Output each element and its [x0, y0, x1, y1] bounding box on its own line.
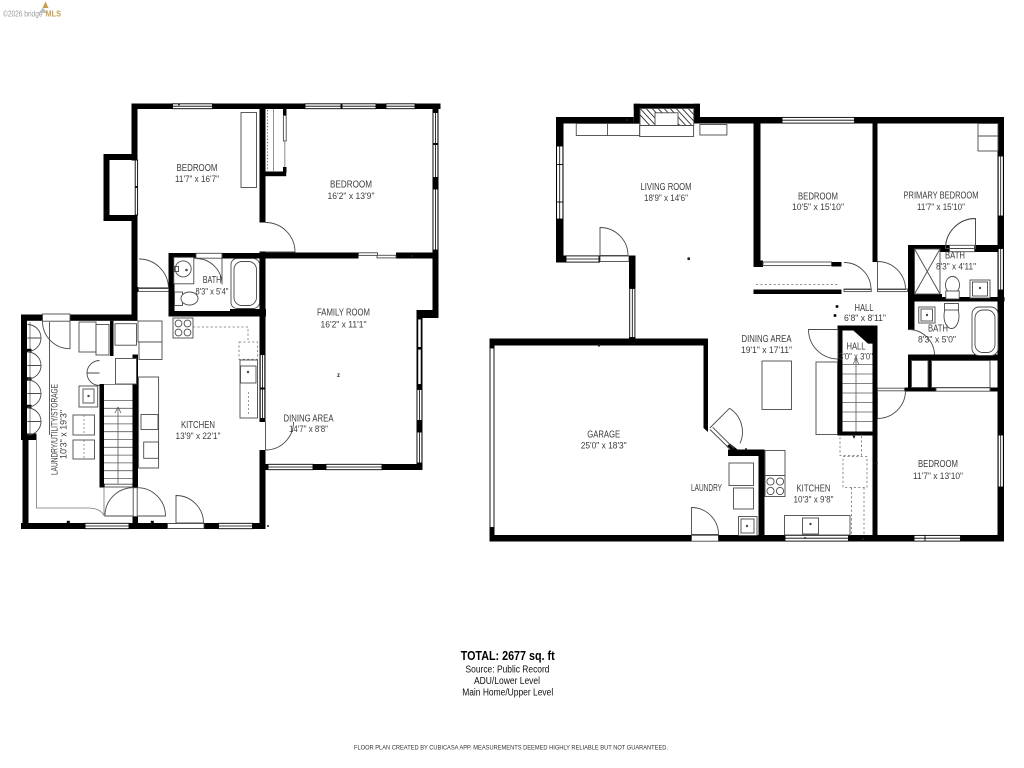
svg-text:11'7" x 13'10": 11'7" x 13'10" [913, 471, 963, 482]
svg-text:14'7" x 8'8": 14'7" x 8'8" [289, 424, 328, 435]
svg-text:Main Home/Upper Level: Main Home/Upper Level [462, 688, 553, 699]
svg-text:FLOOR PLAN CREATED BY CUBICASA: FLOOR PLAN CREATED BY CUBICASA APP. MEAS… [354, 745, 668, 752]
svg-text:BEDROOM: BEDROOM [918, 459, 958, 470]
svg-text:BATH: BATH [928, 324, 948, 335]
svg-text:BATH: BATH [203, 275, 222, 286]
svg-text:11'7" x 16'7": 11'7" x 16'7" [175, 174, 219, 185]
svg-text:MLS: MLS [46, 9, 62, 19]
svg-text:BEDROOM: BEDROOM [798, 192, 838, 203]
svg-text:3'0" x 3'0": 3'0" x 3'0" [839, 352, 873, 363]
svg-text:©2026 bridge: ©2026 bridge [3, 9, 43, 19]
svg-text:8'3" x 4'11": 8'3" x 4'11" [936, 262, 976, 273]
svg-text:DINING AREA: DINING AREA [742, 334, 792, 345]
svg-text:Source: Public Record: Source: Public Record [466, 665, 550, 676]
svg-text:BEDROOM: BEDROOM [330, 180, 372, 191]
svg-text:KITCHEN: KITCHEN [181, 420, 215, 431]
svg-text:10'3" x 9'8": 10'3" x 9'8" [794, 495, 834, 506]
svg-text:PRIMARY BEDROOM: PRIMARY BEDROOM [904, 191, 979, 202]
svg-text:16'2" x 11'1": 16'2" x 11'1" [321, 320, 367, 331]
svg-text:FAMILY ROOM: FAMILY ROOM [317, 308, 370, 319]
svg-text:25'0" x 18'3": 25'0" x 18'3" [581, 441, 627, 452]
svg-text:ADU/Lower Level: ADU/Lower Level [474, 676, 540, 687]
svg-text:z: z [337, 373, 340, 379]
svg-text:11'7" x 15'10": 11'7" x 15'10" [917, 202, 965, 213]
svg-text:10'3" x 19'3": 10'3" x 19'3" [59, 410, 70, 459]
svg-text:BATH: BATH [945, 251, 965, 262]
svg-text:6'8" x 8'11": 6'8" x 8'11" [844, 313, 886, 324]
svg-text:BEDROOM: BEDROOM [177, 163, 218, 174]
svg-text:8'3" x 5'0": 8'3" x 5'0" [918, 335, 956, 346]
svg-text:8'3" x 5'4": 8'3" x 5'4" [196, 287, 229, 298]
svg-text:10'5" x 15'10": 10'5" x 15'10" [792, 202, 844, 213]
svg-text:KITCHEN: KITCHEN [797, 484, 831, 495]
svg-text:GARAGE: GARAGE [587, 430, 620, 441]
svg-text:13'9" x 22'1": 13'9" x 22'1" [176, 431, 221, 442]
svg-text:16'2" x 13'9": 16'2" x 13'9" [328, 191, 375, 202]
svg-text:TOTAL: 2677 sq. ft: TOTAL: 2677 sq. ft [461, 649, 556, 663]
svg-text:DINING AREA: DINING AREA [284, 414, 334, 425]
svg-text:LIVING ROOM: LIVING ROOM [641, 182, 692, 193]
svg-text:18'9" x 14'6": 18'9" x 14'6" [644, 193, 688, 204]
svg-text:LAUNDRY: LAUNDRY [691, 483, 722, 494]
svg-text:19'1" x 17'11": 19'1" x 17'11" [741, 345, 792, 356]
